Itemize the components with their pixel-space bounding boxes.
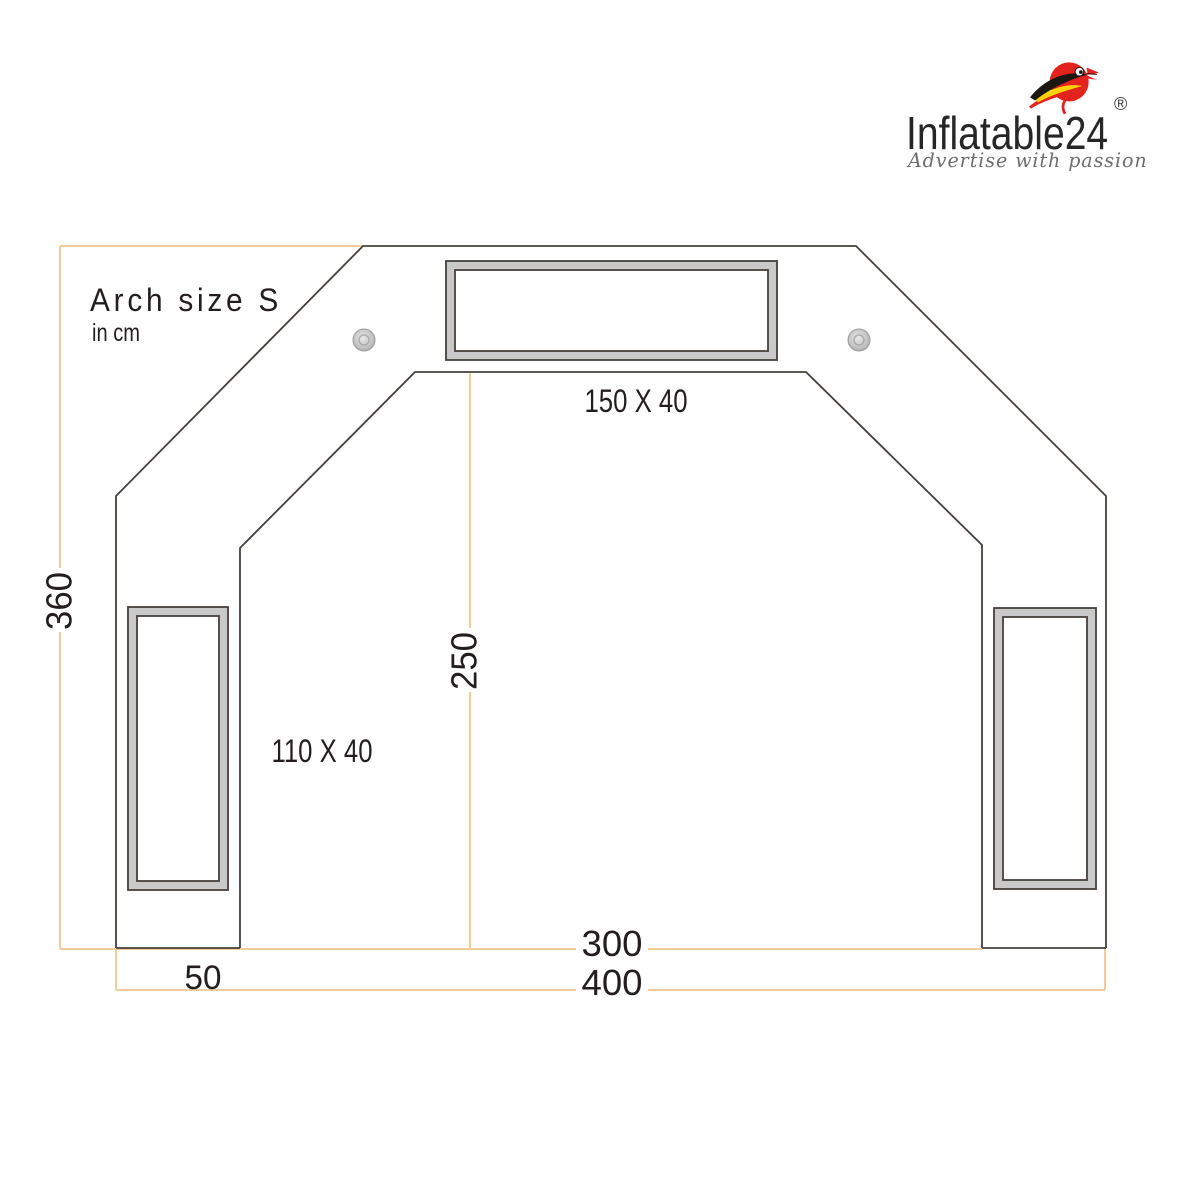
page: Inflatable24 ® Advertise with passion [0,0,1200,1200]
top-banner-inner [455,270,768,351]
diagram-unit-note: in cm [92,319,140,347]
total-width-label: 400 [582,962,643,1003]
left-banner-inner [137,616,219,881]
inner-height-label: 250 [444,632,485,690]
arch-diagram: Arch size S in cm 150 X 40 110 X 40 250 … [0,0,1200,1200]
top-banner-size-label: 150 X 40 [585,383,688,419]
side-banner-size-label: 110 X 40 [272,733,373,769]
left-ring-icon [353,329,375,351]
inner-width-label: 300 [582,923,643,964]
right-ring-icon [848,329,870,351]
diagram-title: Arch size S [90,282,282,318]
total-height-label: 360 [39,572,80,630]
arch-inner-outline [240,372,982,948]
right-banner-inner [1003,617,1087,880]
leg-width-label: 50 [185,959,222,997]
banner-frames [128,261,1096,890]
